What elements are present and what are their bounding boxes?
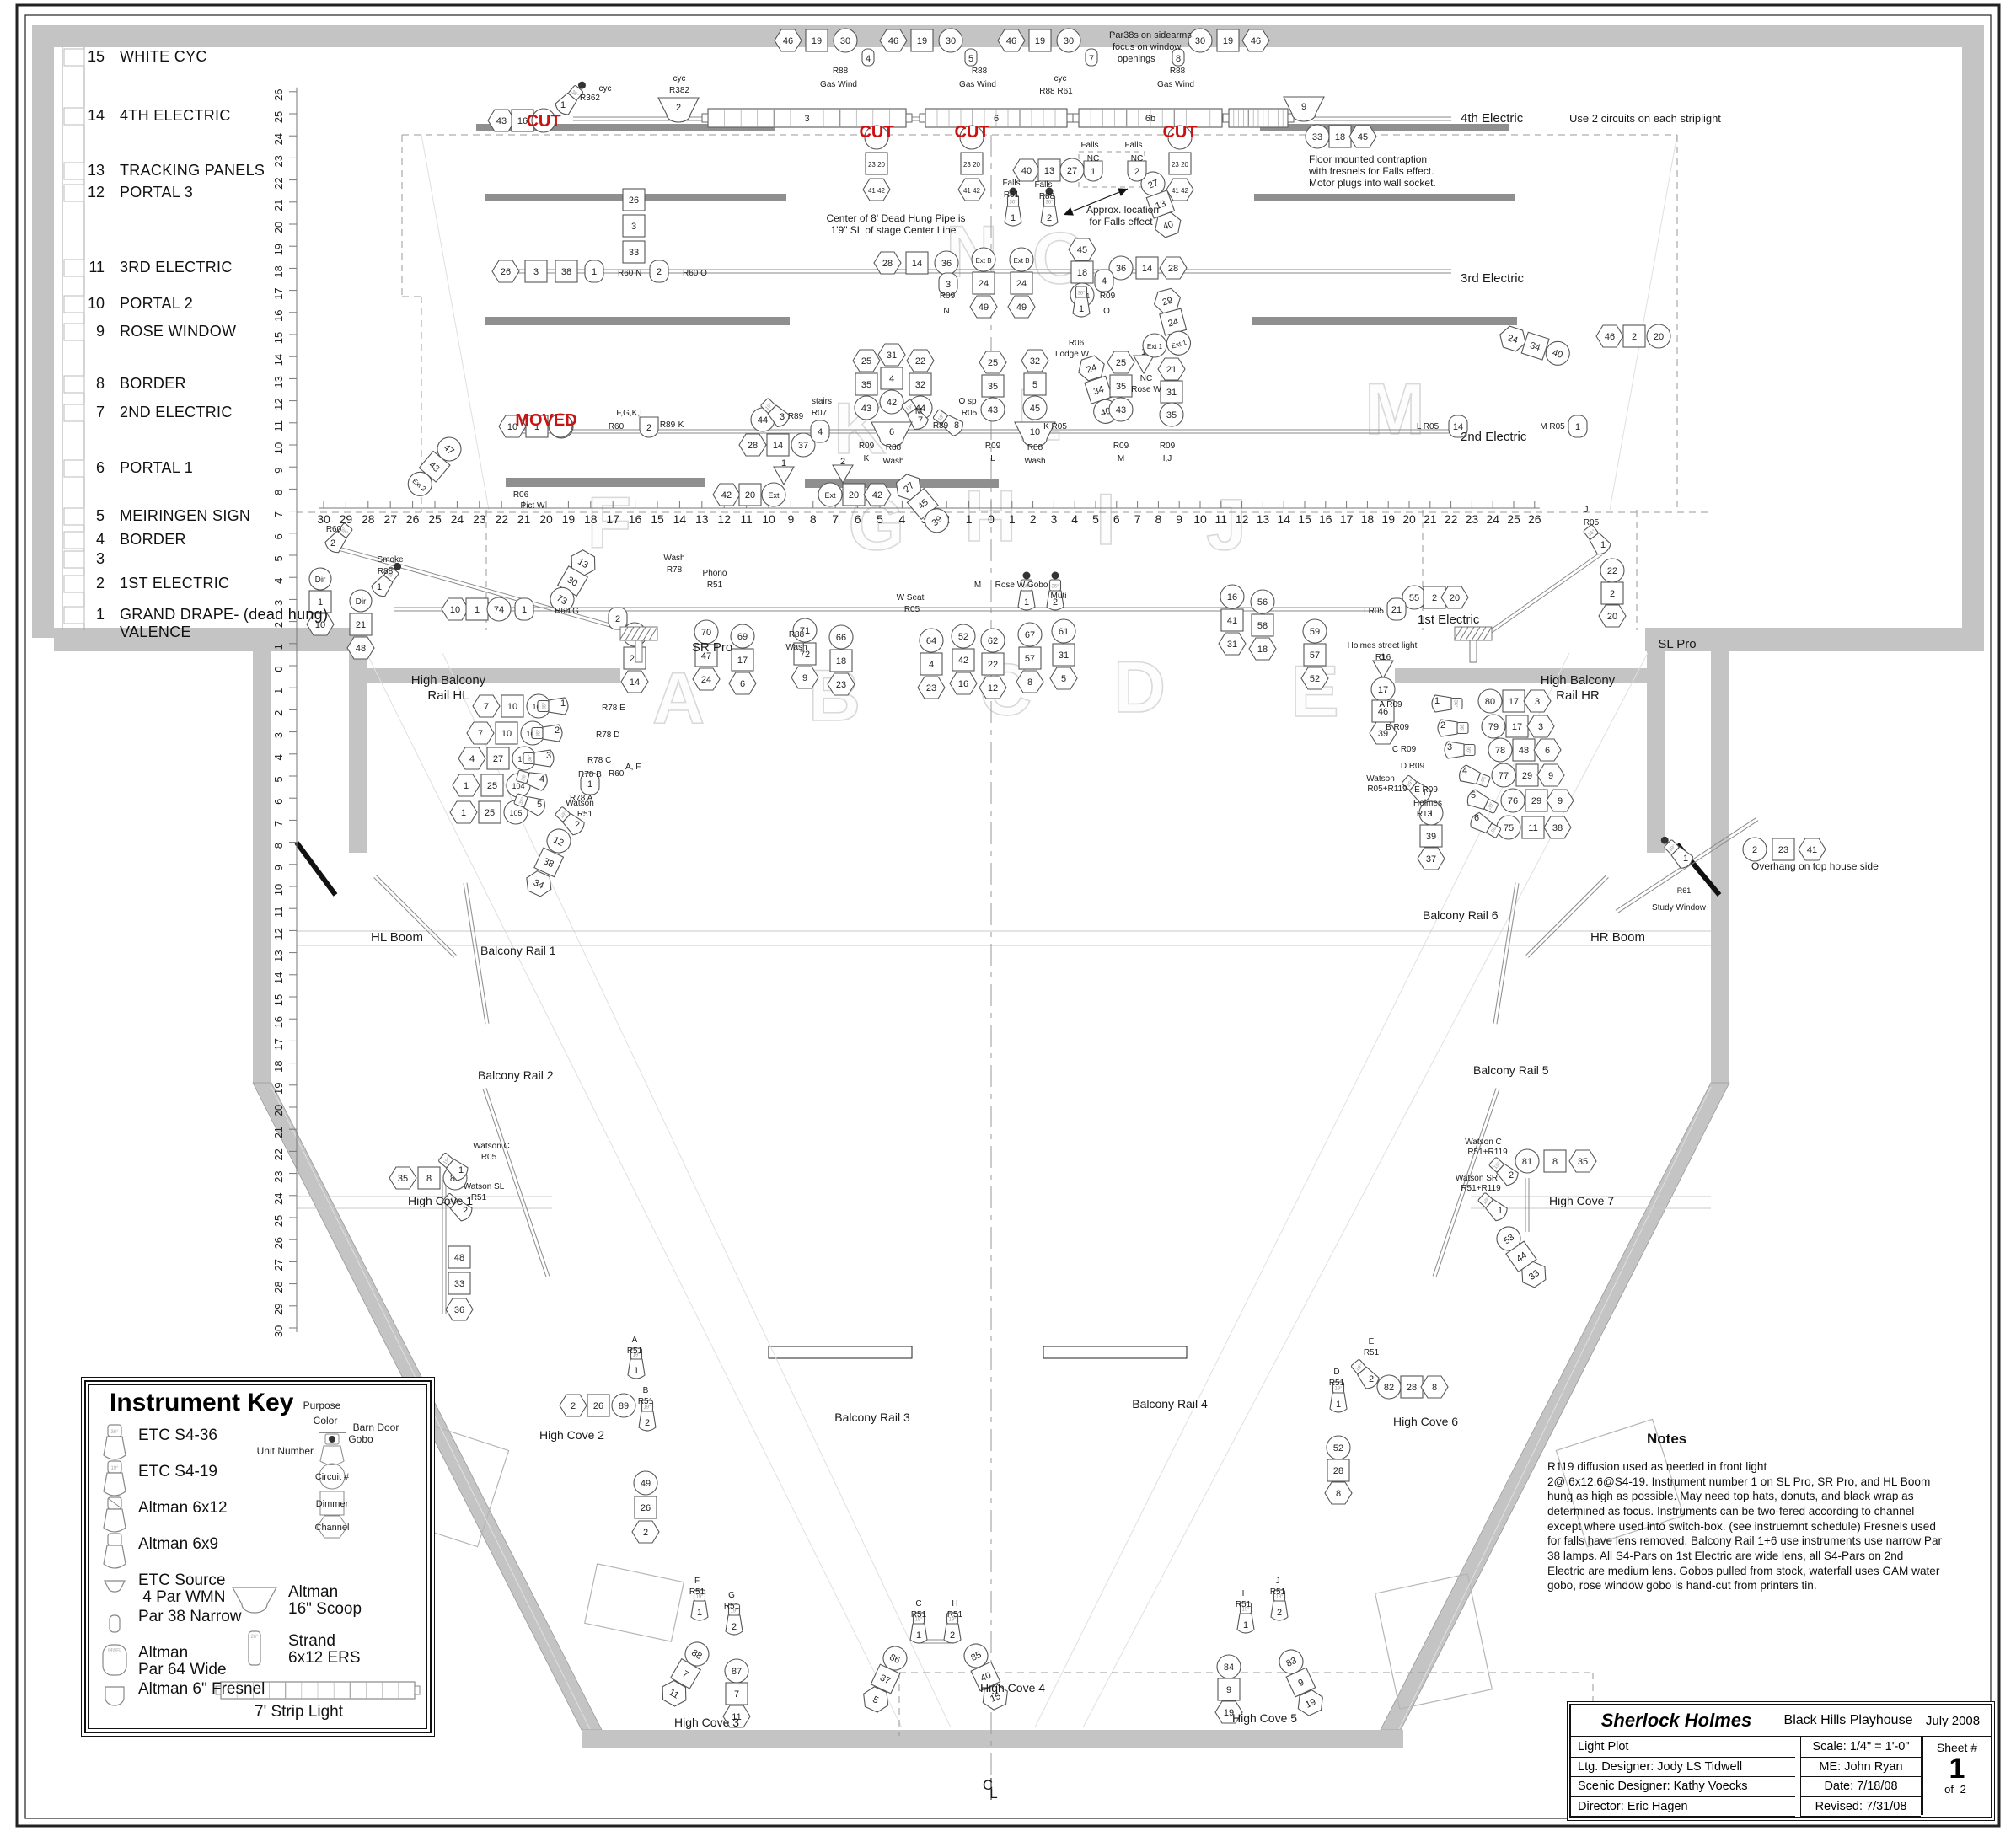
par64-unit: 2 bbox=[609, 608, 627, 629]
plot-label: R05+R119 bbox=[1367, 784, 1407, 794]
dimmer-square: 33 bbox=[623, 241, 645, 263]
horizontal-ruler-number: 23 bbox=[473, 512, 486, 526]
plot-label: for Falls effect bbox=[1089, 216, 1153, 228]
vertical-ruler-number: 19 bbox=[272, 1083, 285, 1095]
channel-hex: 35 bbox=[389, 1167, 416, 1189]
plot-label: Gobo bbox=[348, 1433, 373, 1445]
ers-s4-36-unit: 36°1 bbox=[1432, 695, 1462, 712]
dimmer-square: 23 20 bbox=[961, 153, 983, 174]
lineset-label: BORDER bbox=[120, 531, 186, 549]
plot-label: 43 bbox=[861, 404, 871, 414]
plot-label: 1 bbox=[634, 1366, 639, 1376]
plot-label: 2 bbox=[555, 725, 560, 736]
vertical-ruler-number: 18 bbox=[272, 1060, 285, 1072]
channel-hex: 49 bbox=[970, 296, 997, 318]
circuit-circle: 81 bbox=[1515, 1149, 1539, 1173]
plot-label: 17 bbox=[1378, 685, 1388, 695]
plot-label: 52 bbox=[1333, 1443, 1343, 1454]
plot-label: 1 bbox=[560, 699, 566, 709]
plot-shape bbox=[104, 1473, 126, 1496]
channel-hex: 4 bbox=[458, 747, 485, 769]
theater-name: Black Hills Playhouse bbox=[1782, 1713, 1915, 1728]
dimmer-square: 48 bbox=[448, 1246, 470, 1268]
plot-label: R89 bbox=[933, 421, 949, 431]
plot-label: 81 bbox=[1522, 1157, 1532, 1167]
plot-label: 48 bbox=[454, 1253, 464, 1263]
channel-hex: 16 bbox=[950, 672, 977, 694]
plot-label: Balcony Rail 5 bbox=[1473, 1063, 1549, 1077]
ers-s4-36-unit: 36°3 bbox=[523, 750, 554, 767]
fresnel-unit: 2 bbox=[1128, 161, 1146, 181]
plot-label: 49 bbox=[979, 302, 989, 313]
plot-label: 33 bbox=[629, 248, 639, 258]
plot-label: 80 bbox=[1485, 697, 1495, 707]
plot-label: R51 bbox=[947, 1610, 963, 1620]
dimmer-square: 5 bbox=[1024, 373, 1046, 395]
key-row: ETC S4-36 bbox=[138, 1427, 217, 1444]
plot-label: 25 bbox=[487, 781, 497, 791]
dimmer-square: 18 bbox=[830, 650, 852, 672]
plot-label: 19 bbox=[917, 36, 927, 46]
plot-label: R51 bbox=[911, 1610, 927, 1620]
vertical-ruler-number: 22 bbox=[272, 1148, 285, 1160]
plot-label: Wash bbox=[882, 457, 903, 466]
plot-label: 42 bbox=[887, 398, 897, 408]
lineset-label: 3RD ELECTRIC bbox=[120, 259, 233, 276]
plot-label: 7 bbox=[484, 702, 489, 712]
vertical-ruler-number: 9 bbox=[272, 865, 285, 870]
dimmer-square: 26 bbox=[635, 1496, 657, 1518]
circuit-circle: 77 bbox=[1492, 763, 1515, 787]
instrument-stack: 751138 bbox=[1497, 816, 1571, 839]
key-label: ETC Source 4 Par WMN bbox=[138, 1572, 225, 1606]
ers-s4-19-unit: 19°2 bbox=[1348, 1357, 1381, 1391]
lineset-number: 14 bbox=[74, 107, 105, 125]
instrument-stack: 595752 bbox=[1301, 619, 1328, 689]
plot-label: 7 bbox=[918, 415, 923, 426]
plot-label: with fresnels for Falls effect. bbox=[1308, 165, 1434, 177]
channel-hex: 7 bbox=[473, 695, 500, 717]
plot-label: 89 bbox=[619, 1401, 629, 1411]
dimmer-square: 31 bbox=[1161, 381, 1182, 403]
dimmer-square: 29 bbox=[1525, 790, 1547, 811]
plot-label: W Seat bbox=[897, 593, 925, 602]
dimmer-square: 34 bbox=[1521, 332, 1549, 360]
plot-label: O bbox=[1103, 307, 1110, 316]
plot-label: 4 bbox=[1462, 766, 1467, 776]
plot-label: 70 bbox=[701, 628, 711, 638]
plot-label: Falls bbox=[1034, 180, 1052, 190]
plot-label: 35 bbox=[398, 1174, 408, 1184]
plot-label: 36 bbox=[454, 1305, 464, 1315]
plot-shape bbox=[774, 467, 794, 485]
plot-label: 14 bbox=[773, 441, 783, 451]
plot-label: 24 bbox=[979, 279, 989, 289]
notes-panel: Notes R119 diffusion used as needed in f… bbox=[1547, 1431, 1944, 1593]
plot-label: NC bbox=[1140, 374, 1152, 383]
plot-label: 3 bbox=[780, 412, 785, 422]
channel-hex: 49 bbox=[1008, 296, 1035, 318]
instrument-stack: 213135 bbox=[1158, 358, 1185, 426]
plot-label: 42 bbox=[958, 656, 968, 666]
vertical-ruler-number: 1 bbox=[272, 688, 285, 694]
horizontal-ruler-number: 4 bbox=[899, 512, 906, 526]
plot-label: 48 bbox=[1519, 746, 1529, 756]
plot-label: R362 bbox=[580, 94, 600, 103]
plot-label: High Cove 6 bbox=[1393, 1415, 1458, 1428]
plot-label: 12 bbox=[988, 683, 998, 693]
instrument-stack: 79173 bbox=[1482, 715, 1554, 738]
vertical-ruler-number: 13 bbox=[272, 950, 285, 961]
plot-label: 22 bbox=[915, 356, 925, 367]
red-annotation: MOVED bbox=[515, 411, 576, 430]
sheet-number-box: Sheet # 1 of 2 bbox=[1921, 1737, 1991, 1815]
dimmer-square: 39 bbox=[1420, 825, 1442, 847]
master-electrician: ME: John Ryan bbox=[1801, 1758, 1921, 1778]
plot-label: 1 bbox=[1011, 213, 1016, 223]
plot-shape bbox=[1134, 356, 1154, 373]
par64-unit: 1 bbox=[1568, 415, 1587, 437]
lineset-number: 5 bbox=[74, 507, 105, 525]
plot-label: G bbox=[728, 1591, 735, 1600]
plot-shape bbox=[105, 1581, 125, 1592]
channel-hex: 3 bbox=[1527, 715, 1554, 737]
instrument-stack: 331845 bbox=[1306, 125, 1376, 148]
plot-label: R06 bbox=[1069, 339, 1085, 348]
channel-hex: 1 bbox=[450, 801, 477, 823]
par38-unit: 7 bbox=[1086, 49, 1097, 66]
plot-label: M bbox=[915, 407, 922, 416]
dimmer-square: 14 bbox=[906, 252, 928, 274]
horizontal-ruler-number: 3 bbox=[1051, 512, 1058, 526]
circuit-circle: 22 bbox=[1600, 559, 1624, 582]
dimmer-square: 18 bbox=[1071, 261, 1093, 283]
dimmer-square: 27 bbox=[487, 747, 509, 769]
plot-label: 41 42 bbox=[963, 187, 981, 195]
plot-label: Purpose bbox=[303, 1400, 341, 1411]
plot-label: 14 bbox=[1142, 264, 1152, 274]
plot-label: 25 bbox=[988, 358, 998, 368]
plot-label: 28 bbox=[748, 441, 758, 451]
plot-label: 7 bbox=[1089, 54, 1094, 64]
key-symbol-a612 bbox=[104, 1497, 126, 1532]
horizontal-ruler-number: 18 bbox=[584, 512, 598, 526]
plot-label: 7 bbox=[478, 729, 483, 739]
instrument-stack: 565818 bbox=[1249, 590, 1276, 660]
plot-label: H bbox=[952, 1599, 957, 1609]
sight-line bbox=[1399, 1087, 1711, 1729]
channel-hex: 8 bbox=[1325, 1482, 1352, 1504]
plot-label: R60 bbox=[609, 769, 625, 779]
ers-s4-36-unit: 36°3 bbox=[1445, 742, 1475, 758]
scenery-bold-line bbox=[297, 843, 335, 895]
plot-label: openings bbox=[1118, 54, 1155, 64]
strip-light-tab bbox=[920, 114, 925, 122]
lineset-label: 4TH ELECTRIC bbox=[120, 107, 231, 125]
ers-s4-19-unit: 19°1 bbox=[1476, 1190, 1509, 1223]
key-label: Par 38 Narrow bbox=[138, 1609, 242, 1625]
instrument-stack: 76299 bbox=[1501, 789, 1574, 812]
plot-label: R51+R119 bbox=[1467, 1148, 1508, 1157]
plot-label: 5 bbox=[1032, 380, 1037, 390]
circuit-circle: Ext bbox=[818, 483, 842, 506]
plot-label: 24 bbox=[701, 675, 711, 685]
instrument-stack: 46220 bbox=[1596, 324, 1670, 348]
theater-wall bbox=[1711, 651, 1729, 1083]
plot-label: R88 bbox=[1039, 192, 1055, 201]
horizontal-ruler-number: 10 bbox=[762, 512, 775, 526]
instrument-stack: 61315 bbox=[1050, 619, 1077, 689]
plot-label: 41 bbox=[1227, 616, 1237, 626]
title-block: Sherlock Holmes Black Hills Playhouse Ju… bbox=[1569, 1704, 1992, 1818]
plot-label: 46 bbox=[1006, 36, 1016, 46]
plot-label: Watson SR bbox=[1456, 1174, 1498, 1183]
plot-label: 30 bbox=[1064, 36, 1074, 46]
plot-label: 6 bbox=[740, 679, 745, 689]
instrument-stack: 243440 bbox=[1496, 324, 1572, 368]
plot-label: 25 bbox=[861, 356, 871, 367]
circuit-circle: 35 bbox=[1160, 403, 1183, 426]
plot-label: 44 bbox=[758, 415, 768, 426]
red-annotation: CUT bbox=[1162, 123, 1197, 142]
plot-label: Ext bbox=[824, 491, 836, 500]
channel-hex: 38 bbox=[1544, 816, 1571, 838]
plot-shape bbox=[320, 1446, 344, 1465]
dimmer-square: 25 bbox=[481, 774, 503, 796]
horizontal-ruler-number: 15 bbox=[1298, 512, 1311, 526]
circuit-circle: 75 bbox=[1497, 816, 1520, 839]
plot-label: 17 bbox=[1509, 697, 1519, 707]
plot-label: 1 bbox=[1024, 597, 1029, 608]
plot-label: 42 bbox=[872, 490, 882, 501]
plot-label: 14 bbox=[630, 677, 640, 688]
dimmer-square: 3 bbox=[525, 260, 547, 282]
plot-label: 35 bbox=[1578, 1157, 1588, 1167]
dimmer-square: 32 bbox=[909, 373, 931, 395]
plot-label: Circuit # bbox=[315, 1472, 350, 1482]
channel-hex: 28 bbox=[874, 252, 901, 274]
plot-label: E R09 bbox=[1414, 785, 1438, 795]
plot-label: High Cove 2 bbox=[539, 1428, 604, 1442]
plot-label: 2 bbox=[657, 267, 662, 277]
plot-label: B bbox=[643, 1386, 649, 1395]
plot-label: 6 bbox=[1474, 813, 1479, 823]
red-annotation: CUT bbox=[859, 123, 893, 142]
circuit-circle: 62 bbox=[981, 629, 1005, 652]
boom-base-flag bbox=[1454, 627, 1492, 662]
plot-label: Falls bbox=[1080, 141, 1098, 150]
plot-label: 2 bbox=[676, 103, 681, 113]
plot-label: 64 bbox=[926, 636, 936, 646]
plot-label: 1 bbox=[1079, 304, 1084, 314]
vertical-ruler-number: 4 bbox=[272, 754, 285, 760]
vertical-ruler-number: 6 bbox=[272, 799, 285, 805]
plot-label: 6 bbox=[889, 427, 894, 437]
plot-label: 45 bbox=[1077, 245, 1087, 255]
plot-label: 35 bbox=[861, 380, 871, 390]
par64-unit: 1 bbox=[585, 260, 603, 282]
plot-label: R88 bbox=[1170, 67, 1186, 76]
plot-label: 36° bbox=[1459, 724, 1464, 732]
lineset-schedule: 15WHITE CYC144TH ELECTRIC13TRACKING PANE… bbox=[0, 0, 438, 657]
lineset-label: 1ST ELECTRIC bbox=[120, 575, 229, 592]
channel-hex: 36 bbox=[446, 1298, 473, 1320]
focus-area-letter: M bbox=[1365, 369, 1425, 450]
circuit-circle: 30 bbox=[834, 29, 857, 52]
horizontal-ruler-number: 16 bbox=[1319, 512, 1332, 526]
key-row: ETC S4-19 bbox=[138, 1464, 217, 1480]
theater-wall bbox=[367, 668, 620, 683]
plot-label: 4 bbox=[539, 774, 544, 784]
plot-label: Use 2 circuits on each striplight bbox=[1569, 112, 1721, 125]
plot-label: 8 bbox=[1432, 1383, 1437, 1393]
channel-hex: 14 bbox=[621, 671, 648, 693]
key-label: Altman 6x12 bbox=[138, 1500, 228, 1517]
plot-label: 49 bbox=[641, 1479, 651, 1489]
dimmer-square: 35 bbox=[982, 375, 1004, 397]
circuit-circle: 43 bbox=[855, 396, 878, 420]
plot-label: 2 bbox=[645, 1418, 650, 1428]
instrument-stack: 524216 bbox=[950, 624, 977, 694]
plot-label: D bbox=[1333, 1368, 1339, 1377]
channel-hex: 41 42 bbox=[958, 179, 985, 201]
plot-label: O sp bbox=[958, 397, 977, 406]
vertical-ruler-number: 15 bbox=[272, 994, 285, 1006]
vertical-ruler-number: 24 bbox=[272, 1193, 285, 1205]
instrument-stack: 71729 bbox=[791, 618, 818, 688]
strip-light: 6b bbox=[1073, 109, 1228, 127]
key-label: Strand 6x12 ERS bbox=[288, 1633, 361, 1667]
plot-label: 3 bbox=[1538, 722, 1543, 732]
plot-label: 3 bbox=[533, 267, 539, 277]
plot-label: 76 bbox=[1508, 796, 1518, 806]
horizontal-ruler-number: 15 bbox=[651, 512, 664, 526]
plot-label: 2 bbox=[840, 457, 845, 467]
channel-hex: 25 bbox=[1107, 351, 1134, 373]
plot-label: High Cove 5 bbox=[1232, 1711, 1297, 1725]
par64-unit: 1 bbox=[515, 598, 533, 620]
plot-label: 28 bbox=[1407, 1383, 1417, 1393]
plot-label: 20 bbox=[1450, 593, 1460, 603]
circuit-circle: 36 bbox=[935, 251, 958, 275]
channel-hex: 28 bbox=[739, 434, 766, 456]
plot-label: 1 bbox=[461, 808, 466, 818]
plot-label: Rail HL bbox=[427, 688, 469, 703]
plot-label: 27 bbox=[493, 754, 503, 764]
dimmer-square: 23 20 bbox=[1169, 153, 1191, 174]
revised-date: Revised: 7/31/08 bbox=[1801, 1797, 1921, 1818]
horizontal-ruler-number: 23 bbox=[1466, 512, 1479, 526]
plot-label: 33 bbox=[454, 1279, 464, 1289]
plot-label: NC bbox=[1131, 154, 1143, 163]
instrument-stack: Ext B2449 bbox=[970, 248, 997, 318]
plot-label: R05 bbox=[481, 1153, 497, 1162]
instrument-stack: 461930 bbox=[880, 29, 962, 52]
plot-label: R51 bbox=[1236, 1600, 1252, 1609]
dimmer-square: 1 bbox=[466, 598, 488, 620]
instrument-stack: 461930 bbox=[998, 29, 1080, 52]
channel-hex: 2 bbox=[560, 1395, 587, 1416]
plot-label: 2nd Electric bbox=[1461, 430, 1527, 444]
plot-label: 75 bbox=[1504, 823, 1514, 833]
dimmer-square: 26 bbox=[623, 189, 645, 211]
channel-hex: 41 bbox=[1799, 838, 1826, 860]
channel-hex: 25 bbox=[853, 350, 880, 372]
pipe bbox=[1491, 555, 1602, 634]
plot-label: 19 bbox=[812, 36, 822, 46]
circuit-circle: 52 bbox=[1327, 1436, 1350, 1459]
strip-light: 6 bbox=[920, 109, 1073, 127]
pipe bbox=[1617, 821, 1758, 913]
plot-label: 35 bbox=[988, 382, 998, 392]
plot-label: 45 bbox=[1358, 132, 1368, 142]
horizontal-ruler-number: 19 bbox=[562, 512, 576, 526]
plot-label: K bbox=[864, 454, 870, 463]
plot-shape bbox=[104, 1545, 126, 1568]
lineset-label: PORTAL 2 bbox=[120, 295, 193, 313]
plot-label: R16 bbox=[1375, 653, 1391, 662]
par64-unit: 4 bbox=[811, 420, 829, 442]
plot-label: 16 bbox=[958, 679, 968, 689]
boom-base-post bbox=[1470, 640, 1477, 662]
plot-label: 36° bbox=[1453, 699, 1458, 708]
horizontal-ruler-number: 11 bbox=[740, 512, 753, 526]
channel-hex: 3 bbox=[1524, 690, 1551, 712]
plot-label: Phono bbox=[703, 569, 727, 578]
instrument-stack: 4220Ext bbox=[713, 483, 785, 506]
plot-label: 30 bbox=[946, 36, 956, 46]
fresnel-unit: 1 bbox=[1084, 161, 1102, 181]
plot-label: J bbox=[1584, 506, 1589, 515]
plot-label: Overhang on top house side bbox=[1751, 860, 1879, 872]
plot-label: SL Pro bbox=[1658, 637, 1696, 651]
dimmer-square: 10 bbox=[496, 722, 517, 744]
plot-label: Wash bbox=[1024, 457, 1045, 466]
plot-label: D R09 bbox=[1401, 762, 1425, 771]
strip-light-number: 3 bbox=[804, 114, 809, 124]
plot-label: R78 C bbox=[587, 756, 611, 765]
plot-label: I R05 bbox=[1364, 607, 1384, 616]
instrument-stack: 88711 bbox=[657, 1637, 715, 1710]
plot-label: 61 bbox=[1059, 627, 1069, 637]
instrument-stack: 461930 bbox=[775, 29, 857, 52]
plot-label: Holmes street light bbox=[1348, 641, 1418, 650]
plot-label: 2 bbox=[571, 1401, 576, 1411]
plot-label: Channel bbox=[315, 1523, 350, 1533]
horizontal-ruler-number: 17 bbox=[1340, 512, 1354, 526]
plot-label: A R09 bbox=[1379, 700, 1402, 709]
plot-label: R51+R119 bbox=[1461, 1184, 1501, 1193]
plot-label: R78 bbox=[667, 565, 683, 575]
plot-label: 2 bbox=[615, 614, 620, 624]
channel-hex: 7 bbox=[467, 722, 494, 744]
plot-label: Falls bbox=[1002, 179, 1020, 188]
title-block-mid-column: Scale: 1/4" = 1'-0" ME: John Ryan Date: … bbox=[1799, 1737, 1921, 1817]
channel-hex: 10 bbox=[442, 598, 469, 620]
par38-unit: 5 bbox=[965, 49, 977, 66]
plot-label: 43 bbox=[1116, 405, 1126, 415]
lineset-label: 2ND ELECTRIC bbox=[120, 404, 233, 421]
plot-label: HL Boom bbox=[371, 930, 423, 945]
circuit-circle: 66 bbox=[829, 625, 853, 649]
plot-label: 17 bbox=[737, 656, 748, 666]
document-type: Light Plot bbox=[1571, 1737, 1795, 1758]
channel-hex: 28 bbox=[1160, 257, 1187, 279]
par64-unit: 21 bbox=[1387, 598, 1406, 620]
channel-hex: 18 bbox=[1249, 638, 1276, 660]
plot-shape bbox=[415, 1686, 420, 1694]
show-title: Sherlock Holmes bbox=[1571, 1710, 1782, 1732]
